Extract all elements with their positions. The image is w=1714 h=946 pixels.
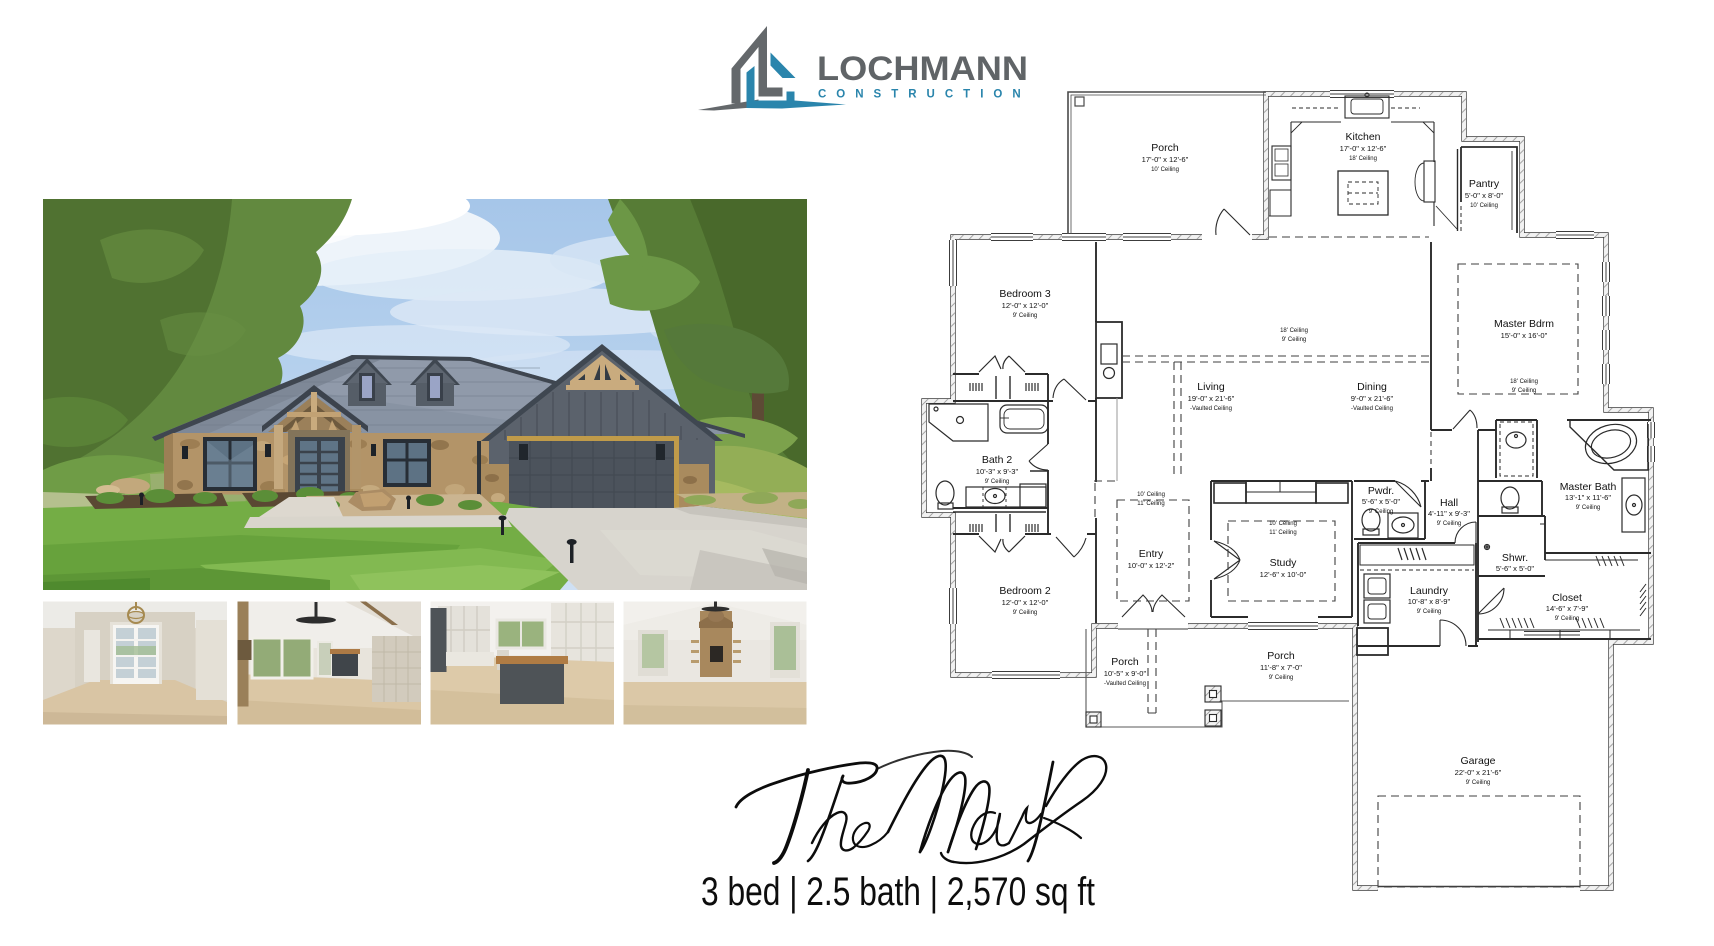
svg-text:9' Ceiling: 9' Ceiling xyxy=(985,479,1010,485)
svg-text:10'-0" x 12'-2": 10'-0" x 12'-2" xyxy=(1128,561,1175,570)
svg-text:17'-0" x 12'-6": 17'-0" x 12'-6" xyxy=(1142,155,1189,164)
svg-text:10'-8" x 8'-9": 10'-8" x 8'-9" xyxy=(1408,597,1451,606)
svg-text:18' Ceiling: 18' Ceiling xyxy=(1510,379,1538,385)
svg-text:-Vaulted Ceiling: -Vaulted Ceiling xyxy=(1104,681,1146,687)
svg-text:9' Ceiling: 9' Ceiling xyxy=(1512,388,1537,394)
svg-text:9' Ceiling: 9' Ceiling xyxy=(1013,610,1038,616)
svg-text:9' Ceiling: 9' Ceiling xyxy=(1282,337,1307,343)
svg-text:18' Ceiling: 18' Ceiling xyxy=(1280,328,1308,334)
svg-text:Bedroom 2: Bedroom 2 xyxy=(999,585,1051,597)
svg-text:-Vaulted Ceiling: -Vaulted Ceiling xyxy=(1351,406,1393,412)
svg-text:-Vaulted Ceiling: -Vaulted Ceiling xyxy=(1190,406,1232,412)
svg-text:5'-0" x 8'-0": 5'-0" x 8'-0" xyxy=(1465,191,1504,200)
svg-text:9' Ceiling: 9' Ceiling xyxy=(1269,675,1294,681)
svg-text:Porch: Porch xyxy=(1151,142,1179,154)
svg-text:12'-0" x 12'-0": 12'-0" x 12'-0" xyxy=(1002,598,1049,607)
svg-text:22'-0" x 21'-6": 22'-0" x 21'-6" xyxy=(1455,768,1502,777)
svg-text:9' Ceiling: 9' Ceiling xyxy=(1576,505,1601,511)
svg-text:10' Ceiling: 10' Ceiling xyxy=(1137,492,1165,498)
svg-text:9' Ceiling: 9' Ceiling xyxy=(1013,313,1038,319)
svg-text:9'-0" x 21'-6": 9'-0" x 21'-6" xyxy=(1351,394,1394,403)
svg-text:10'-3" x 9'-3": 10'-3" x 9'-3" xyxy=(976,467,1019,476)
svg-text:18' Ceiling: 18' Ceiling xyxy=(1349,156,1377,162)
svg-text:Bedroom 3: Bedroom 3 xyxy=(999,288,1051,300)
svg-text:Porch: Porch xyxy=(1267,650,1295,662)
svg-text:14'-6" x 7'-9": 14'-6" x 7'-9" xyxy=(1546,604,1589,613)
svg-text:Shwr.: Shwr. xyxy=(1502,552,1528,564)
svg-text:Master Bath: Master Bath xyxy=(1560,481,1617,493)
svg-text:Entry: Entry xyxy=(1139,548,1164,560)
svg-text:9' Ceiling: 9' Ceiling xyxy=(1466,780,1491,786)
svg-text:9' Ceiling: 9' Ceiling xyxy=(1369,509,1394,515)
svg-text:19'-0" x 21'-6": 19'-0" x 21'-6" xyxy=(1188,394,1235,403)
svg-text:Bath 2: Bath 2 xyxy=(982,454,1013,466)
svg-text:Study: Study xyxy=(1270,557,1298,569)
svg-text:5'-6" x 5'-0": 5'-6" x 5'-0" xyxy=(1496,564,1535,573)
svg-text:13'-1" x 11'-6": 13'-1" x 11'-6" xyxy=(1565,493,1611,502)
svg-text:4'-11" x 9'-3": 4'-11" x 9'-3" xyxy=(1428,509,1470,518)
svg-text:11' Ceiling: 11' Ceiling xyxy=(1137,501,1164,507)
svg-text:Dining: Dining xyxy=(1357,381,1387,393)
svg-text:11'-8" x 7'-0": 11'-8" x 7'-0" xyxy=(1260,663,1302,672)
svg-text:9' Ceiling: 9' Ceiling xyxy=(1437,521,1462,527)
svg-text:11' Ceiling: 11' Ceiling xyxy=(1269,530,1296,536)
svg-text:9' Ceiling: 9' Ceiling xyxy=(1555,616,1580,622)
svg-text:Garage: Garage xyxy=(1460,755,1495,767)
svg-text:9' Ceiling: 9' Ceiling xyxy=(1417,609,1442,615)
svg-text:Porch: Porch xyxy=(1111,656,1139,668)
svg-text:12'-0" x 12'-0": 12'-0" x 12'-0" xyxy=(1002,301,1049,310)
svg-text:15'-0" x 16'-0": 15'-0" x 16'-0" xyxy=(1501,331,1548,340)
svg-text:Laundry: Laundry xyxy=(1410,585,1449,597)
svg-text:Living: Living xyxy=(1197,381,1225,393)
svg-text:Hall: Hall xyxy=(1440,497,1458,509)
svg-text:10'-5" x 9'-0": 10'-5" x 9'-0" xyxy=(1104,669,1147,678)
svg-text:10' Ceiling: 10' Ceiling xyxy=(1470,203,1498,209)
svg-text:Kitchen: Kitchen xyxy=(1345,131,1380,143)
svg-text:17'-0" x 12'-6": 17'-0" x 12'-6" xyxy=(1340,144,1387,153)
svg-text:Pwdr.: Pwdr. xyxy=(1368,485,1394,497)
svg-text:Master Bdrm: Master Bdrm xyxy=(1494,318,1554,330)
svg-text:5'-6" x 5'-0": 5'-6" x 5'-0" xyxy=(1362,497,1401,506)
svg-text:3 bed | 2.5 bath | 2,570 sq ft: 3 bed | 2.5 bath | 2,570 sq ft xyxy=(701,870,1095,914)
svg-text:Pantry: Pantry xyxy=(1469,178,1500,190)
svg-text:12'-6" x 10'-0": 12'-6" x 10'-0" xyxy=(1260,570,1307,579)
svg-text:10' Ceiling: 10' Ceiling xyxy=(1151,167,1179,173)
svg-text:CONSTRUCTION: CONSTRUCTION xyxy=(818,89,1031,101)
svg-text:10' Ceiling: 10' Ceiling xyxy=(1269,521,1297,527)
svg-text:LOCHMANN: LOCHMANN xyxy=(817,50,1028,88)
svg-text:Closet: Closet xyxy=(1552,592,1582,604)
